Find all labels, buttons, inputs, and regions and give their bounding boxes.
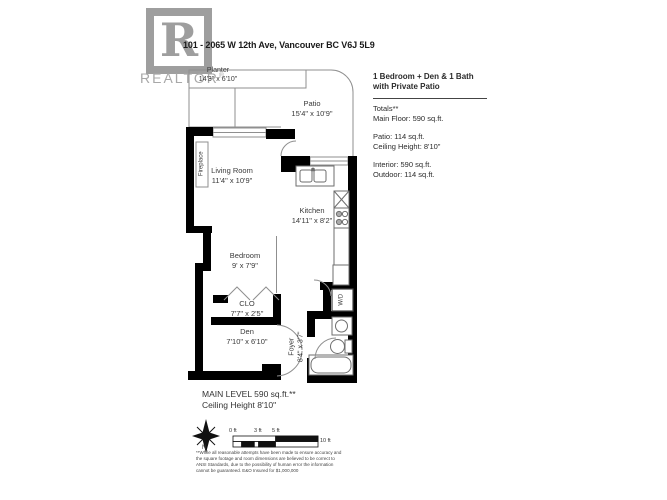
floor-plan-drawing	[0, 0, 667, 500]
closet-name: CLO	[231, 299, 264, 309]
kitchen-label: Kitchen 14'11" x 8'2"	[292, 206, 333, 226]
patio-label: Patio 15'4" x 10'9"	[291, 99, 332, 119]
den-name: Den	[226, 327, 267, 337]
foyer-name: Foyer	[288, 312, 297, 382]
bedroom-label: Bedroom 9' x 7'9"	[230, 251, 260, 271]
patio-gate-arc	[331, 70, 353, 92]
property-address: 101 - 2065 W 12th Ave, Vancouver BC V6J …	[183, 40, 375, 50]
scale-10ft: 10 ft	[320, 438, 331, 444]
bathroom-fixtures	[309, 317, 353, 375]
kitchen-cabinet	[333, 265, 349, 285]
summary-panel: 1 Bedroom + Den & 1 Bath with Private Pa…	[373, 72, 498, 189]
scale-5ft: 5 ft	[272, 428, 280, 434]
floor-plan-page: { "header": { "address": "101 - 2065 W 1…	[0, 0, 667, 500]
outdoor-area: Outdoor: 114 sq.ft.	[373, 170, 498, 180]
patio-area: Patio: 114 sq.ft.	[373, 132, 498, 142]
bathtub-inner	[311, 357, 351, 373]
closet-label: CLO 7'7" x 2'5"	[231, 299, 264, 319]
interior-area: Interior: 590 sq.ft.	[373, 160, 498, 170]
planter-label: Planter 14'3" x 6'10"	[199, 66, 237, 84]
scale-3ft: 3 ft	[254, 428, 262, 434]
ceiling-height: Ceiling Height: 8'10"	[373, 142, 498, 152]
main-level-area: MAIN LEVEL 590 sq.ft.**	[202, 389, 296, 400]
summary-divider	[373, 98, 487, 99]
patio-dims: 15'4" x 10'9"	[291, 109, 332, 119]
kitchen-sink-basin	[300, 170, 312, 182]
summary-title-line2: with Private Patio	[373, 82, 498, 92]
kitchen-name: Kitchen	[292, 206, 333, 216]
den-label: Den 7'10" x 6'10"	[226, 327, 267, 347]
bedroom-name: Bedroom	[230, 251, 260, 261]
kitchen-dims: 14'11" x 8'2"	[292, 216, 333, 226]
stove-icon	[334, 208, 349, 228]
toilet-icon	[331, 340, 345, 354]
fireplace-label: Fireplace	[198, 139, 206, 189]
living-room-label: Living Room 11'4" x 10'9"	[211, 166, 253, 186]
bedroom-dims: 9' x 7'9"	[230, 261, 260, 271]
foyer-dims: 8'4" x 3'7"	[297, 312, 306, 382]
main-level-ceiling: Ceiling Height 8'10"	[202, 400, 296, 411]
kitchen-sink-basin	[314, 170, 326, 182]
kitchen-fixtures	[296, 166, 349, 285]
totals-label: Totals**	[373, 104, 498, 114]
bathroom-sink-icon	[336, 320, 348, 332]
scale-bar	[233, 436, 318, 447]
main-floor-area: Main Floor: 590 sq.ft.	[373, 114, 498, 124]
kitchen-cabinet	[334, 228, 349, 265]
toilet-tank	[345, 340, 352, 353]
living-room-name: Living Room	[211, 166, 253, 176]
patio-door-arc	[281, 141, 296, 156]
planter-dims: 14'3" x 6'10"	[199, 75, 237, 84]
faucet-icon	[312, 168, 315, 171]
closet-dims: 7'7" x 2'5"	[231, 309, 264, 319]
main-level-note: MAIN LEVEL 590 sq.ft.** Ceiling Height 8…	[202, 389, 296, 411]
patio-name: Patio	[291, 99, 332, 109]
disclaimer-text: **While all reasonable attempts have bee…	[196, 450, 346, 473]
foyer-label: Foyer 8'4" x 3'7"	[288, 312, 306, 382]
scale-0ft: 0 ft	[229, 428, 237, 434]
den-dims: 7'10" x 6'10"	[226, 337, 267, 347]
washer-dryer-label: W/D	[338, 285, 346, 315]
summary-title-line1: 1 Bedroom + Den & 1 Bath	[373, 72, 498, 82]
living-room-dims: 11'4" x 10'9"	[211, 176, 253, 186]
planter-name: Planter	[199, 66, 237, 75]
